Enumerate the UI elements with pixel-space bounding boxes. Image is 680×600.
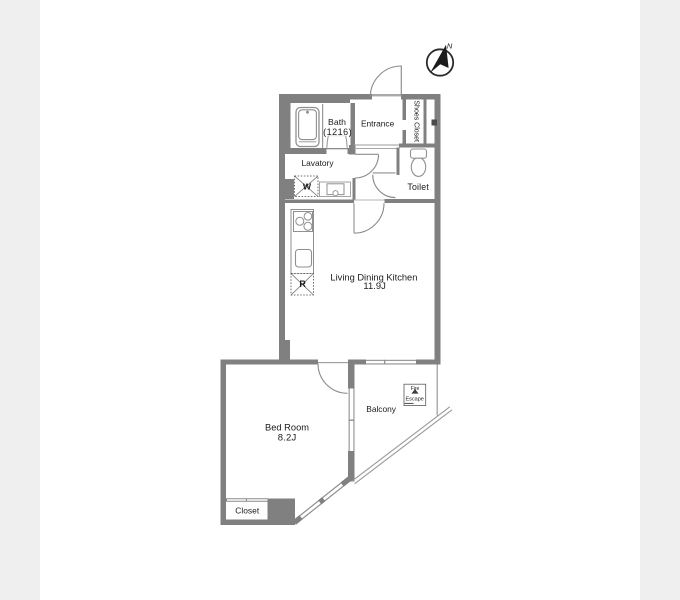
svg-text:Shoes Closet: Shoes Closet	[413, 100, 420, 142]
svg-text:Lavatory: Lavatory	[302, 158, 335, 168]
svg-text:11.9J: 11.9J	[363, 280, 386, 291]
svg-text:(1216): (1216)	[323, 127, 352, 137]
svg-text:N: N	[447, 42, 453, 51]
svg-text:Escape: Escape	[406, 397, 424, 403]
svg-text:Bed Room: Bed Room	[265, 423, 309, 433]
svg-text:R: R	[299, 279, 306, 289]
svg-text:8.2J: 8.2J	[278, 432, 297, 443]
svg-text:Toilet: Toilet	[407, 182, 429, 192]
svg-text:Entrance: Entrance	[361, 119, 395, 129]
svg-text:Closet: Closet	[235, 506, 260, 516]
svg-text:Bath: Bath	[328, 117, 346, 127]
svg-text:Balcony: Balcony	[366, 404, 397, 414]
svg-text:W: W	[303, 182, 312, 192]
